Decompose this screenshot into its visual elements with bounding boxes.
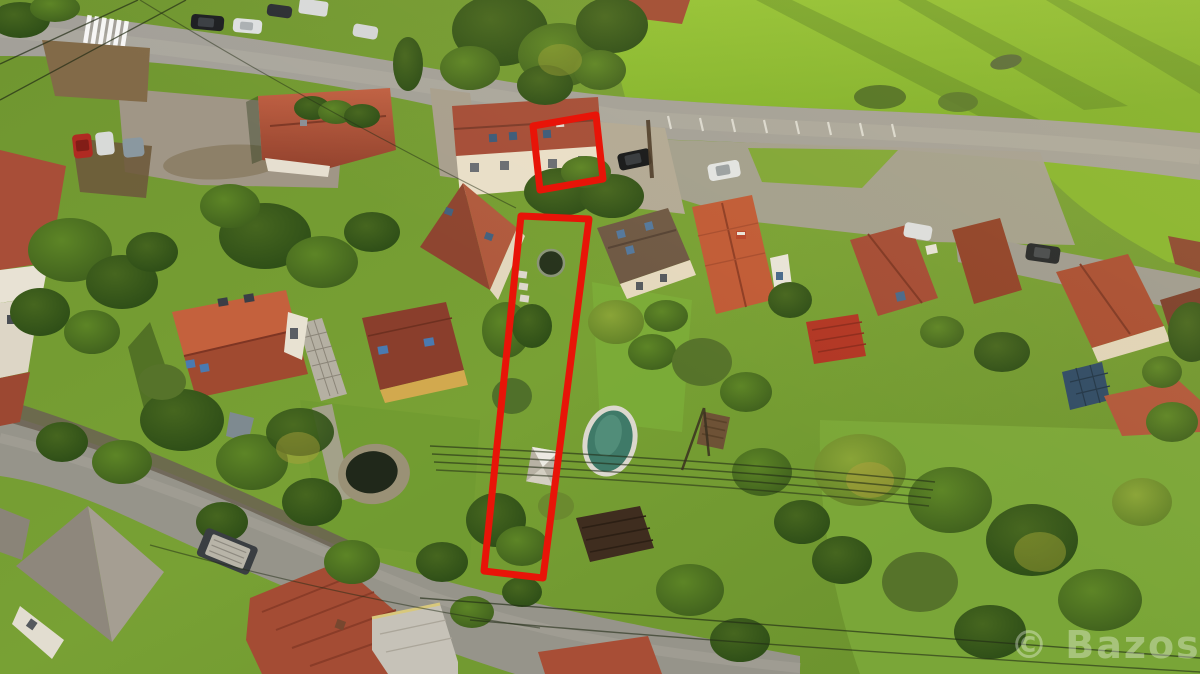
- sunlight-overlay: [0, 0, 1200, 674]
- aerial-photo-canvas: © Bazos.cz: [0, 0, 1200, 674]
- watermark: © Bazos.cz: [1010, 623, 1200, 667]
- aerial-photo: © Bazos.cz: [0, 0, 1200, 674]
